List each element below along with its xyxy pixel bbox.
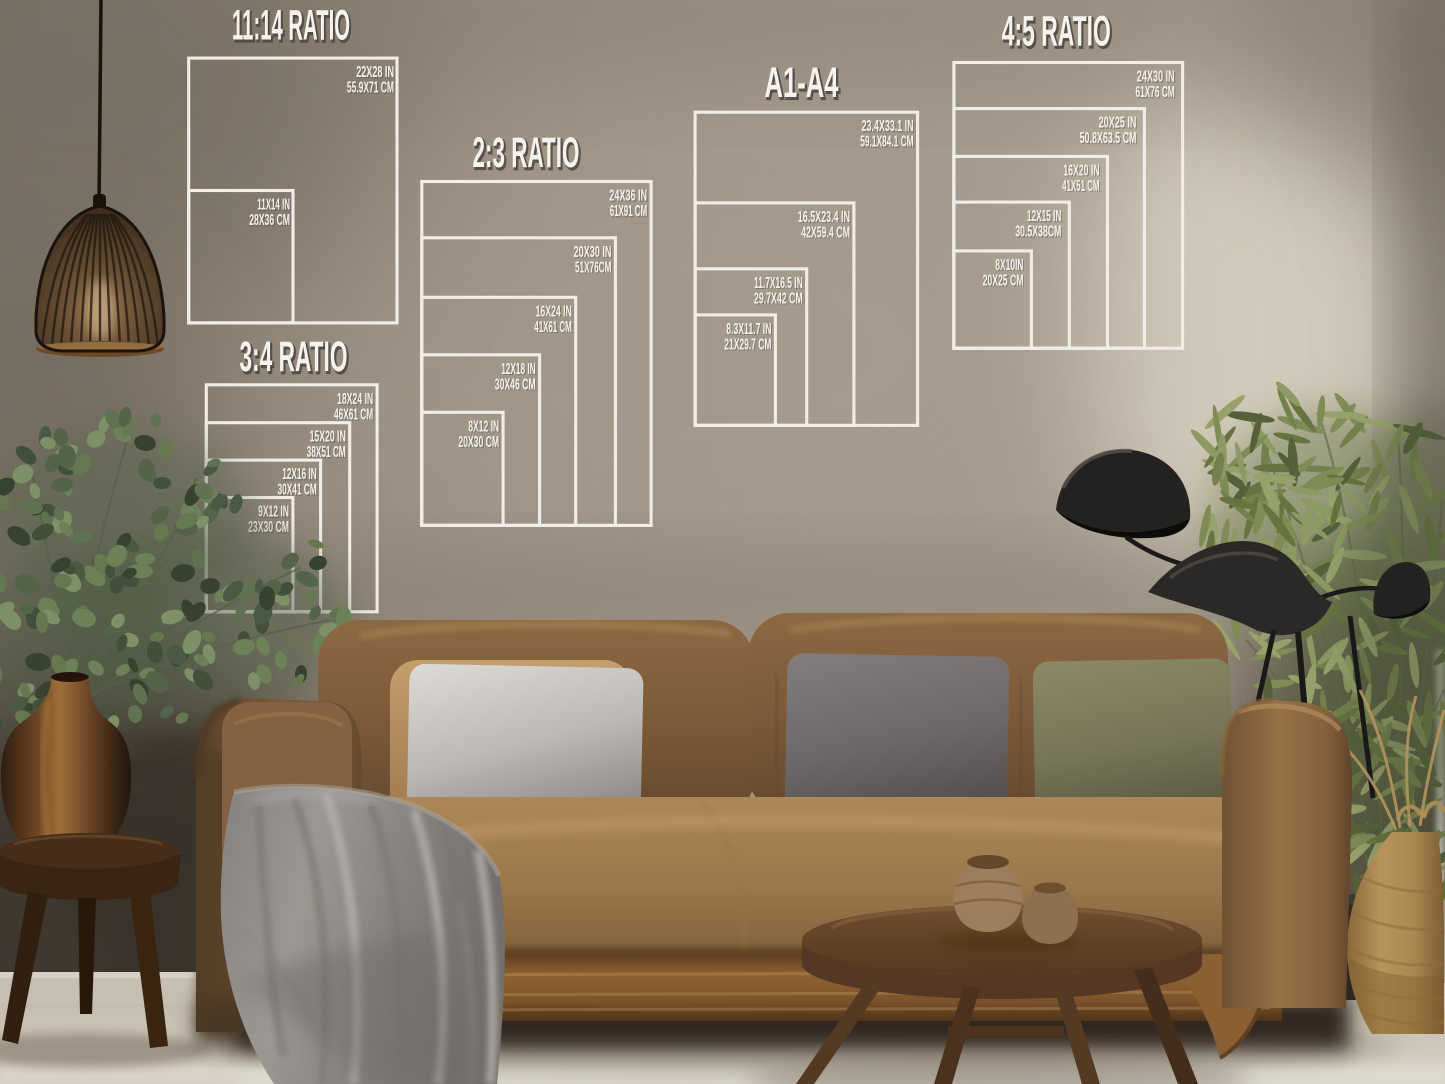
svg-text:23X30 CM: 23X30 CM: [248, 519, 289, 536]
svg-text:16X20 IN: 16X20 IN: [1063, 162, 1099, 179]
svg-text:18X24 IN: 18X24 IN: [337, 391, 373, 408]
svg-text:4:5 RATIO: 4:5 RATIO: [1002, 8, 1111, 56]
svg-text:12X15 IN: 12X15 IN: [1027, 208, 1061, 225]
svg-text:2:3 RATIO: 2:3 RATIO: [473, 129, 580, 177]
svg-text:28X36 CM: 28X36 CM: [249, 212, 290, 229]
svg-text:24X36 IN: 24X36 IN: [609, 188, 647, 205]
svg-text:51X76CM: 51X76CM: [575, 259, 611, 276]
svg-text:20X25 CM: 20X25 CM: [983, 272, 1024, 289]
svg-text:16X24 IN: 16X24 IN: [536, 303, 572, 320]
svg-text:15X20 IN: 15X20 IN: [310, 429, 346, 446]
svg-text:A1-A4: A1-A4: [765, 59, 839, 107]
svg-text:50.8X63.5 CM: 50.8X63.5 CM: [1080, 130, 1137, 147]
svg-text:16.5X23.4 IN: 16.5X23.4 IN: [798, 209, 850, 226]
svg-text:61X76 CM: 61X76 CM: [1136, 84, 1175, 101]
svg-text:21X29.7 CM: 21X29.7 CM: [724, 336, 771, 353]
svg-text:20X25 IN: 20X25 IN: [1099, 115, 1137, 132]
svg-text:11.7X16.5 IN: 11.7X16.5 IN: [754, 275, 803, 292]
svg-text:23.4X33.1 IN: 23.4X33.1 IN: [862, 118, 914, 135]
svg-text:11X14 IN: 11X14 IN: [257, 197, 290, 214]
svg-text:42X59.4 CM: 42X59.4 CM: [801, 224, 850, 241]
svg-text:9X12 IN: 9X12 IN: [258, 504, 289, 521]
svg-text:11:14 RATIO: 11:14 RATIO: [232, 2, 350, 50]
svg-text:8.3X11.7 IN: 8.3X11.7 IN: [726, 321, 771, 338]
svg-text:41X51 CM: 41X51 CM: [1062, 178, 1099, 195]
svg-text:24X30 IN: 24X30 IN: [1137, 69, 1175, 86]
svg-text:30X46 CM: 30X46 CM: [495, 376, 536, 393]
svg-text:22X28 IN: 22X28 IN: [356, 64, 394, 81]
svg-text:12X18 IN: 12X18 IN: [501, 361, 535, 378]
svg-text:8X12 IN: 8X12 IN: [468, 418, 499, 435]
svg-text:12X16 IN: 12X16 IN: [282, 466, 316, 483]
svg-text:46X61 CM: 46X61 CM: [334, 406, 373, 423]
svg-text:55.9X71 CM: 55.9X71 CM: [347, 80, 394, 97]
svg-text:8X10IN: 8X10IN: [995, 257, 1023, 274]
svg-text:41X61 CM: 41X61 CM: [534, 319, 571, 336]
svg-text:30.5X38CM: 30.5X38CM: [1015, 224, 1061, 241]
svg-text:29.7X42 CM: 29.7X42 CM: [754, 290, 803, 307]
svg-text:20X30 CM: 20X30 CM: [458, 434, 499, 451]
svg-text:59.1X84.1 CM: 59.1X84.1 CM: [860, 134, 913, 151]
svg-text:61X91 CM: 61X91 CM: [610, 203, 647, 220]
svg-text:20X30 IN: 20X30 IN: [574, 244, 612, 261]
svg-text:3:4 RATIO: 3:4 RATIO: [240, 333, 348, 381]
